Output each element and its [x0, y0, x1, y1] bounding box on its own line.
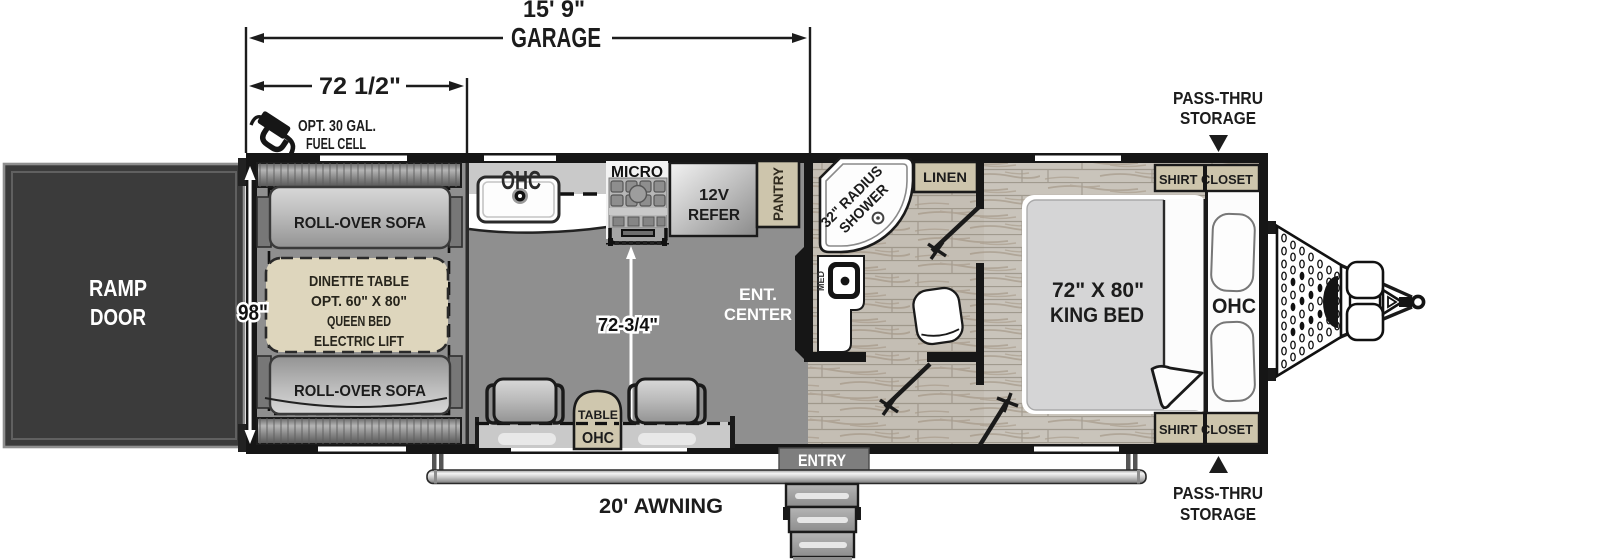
svg-text:STORAGE: STORAGE	[1180, 108, 1256, 128]
svg-text:OHC: OHC	[1212, 295, 1256, 318]
svg-text:12V: 12V	[699, 187, 730, 204]
svg-text:TABLE: TABLE	[578, 408, 618, 422]
svg-text:LINEN: LINEN	[923, 170, 967, 185]
svg-text:CENTER: CENTER	[724, 305, 792, 324]
svg-text:OPT. 60" X 80": OPT. 60" X 80"	[311, 293, 407, 310]
svg-text:KING BED: KING BED	[1050, 304, 1144, 327]
svg-text:PASS-THRU: PASS-THRU	[1173, 88, 1263, 108]
svg-text:FUEL CELL: FUEL CELL	[306, 136, 366, 153]
svg-text:PASS-THRU: PASS-THRU	[1173, 483, 1263, 503]
svg-text:MED: MED	[816, 271, 826, 292]
svg-text:QUEEN BED: QUEEN BED	[327, 313, 391, 330]
svg-text:15' 9": 15' 9"	[523, 0, 585, 23]
svg-text:72" X 80": 72" X 80"	[1052, 279, 1144, 302]
svg-text:98": 98"	[238, 300, 268, 325]
svg-text:72-3/4": 72-3/4"	[598, 315, 658, 335]
svg-text:DINETTE TABLE: DINETTE TABLE	[309, 273, 409, 290]
svg-text:ELECTRIC LIFT: ELECTRIC LIFT	[314, 333, 404, 350]
svg-text:OPT. 30 GAL.: OPT. 30 GAL.	[298, 118, 376, 135]
svg-text:DOOR: DOOR	[90, 304, 146, 330]
svg-text:GARAGE: GARAGE	[511, 22, 601, 53]
svg-text:OHC: OHC	[501, 165, 541, 195]
svg-text:ROLL-OVER SOFA: ROLL-OVER SOFA	[294, 383, 426, 400]
svg-text:OHC: OHC	[582, 430, 614, 447]
svg-text:72 1/2": 72 1/2"	[319, 73, 401, 100]
svg-text:PANTRY: PANTRY	[770, 166, 786, 221]
svg-text:ROLL-OVER SOFA: ROLL-OVER SOFA	[294, 215, 426, 232]
svg-text:RAMP: RAMP	[89, 275, 147, 301]
svg-text:REFER: REFER	[688, 207, 740, 224]
svg-text:ENT.: ENT.	[739, 285, 777, 304]
svg-text:STORAGE: STORAGE	[1180, 504, 1256, 524]
svg-text:ENTRY: ENTRY	[798, 452, 846, 470]
svg-text:20' AWNING: 20' AWNING	[599, 495, 723, 518]
